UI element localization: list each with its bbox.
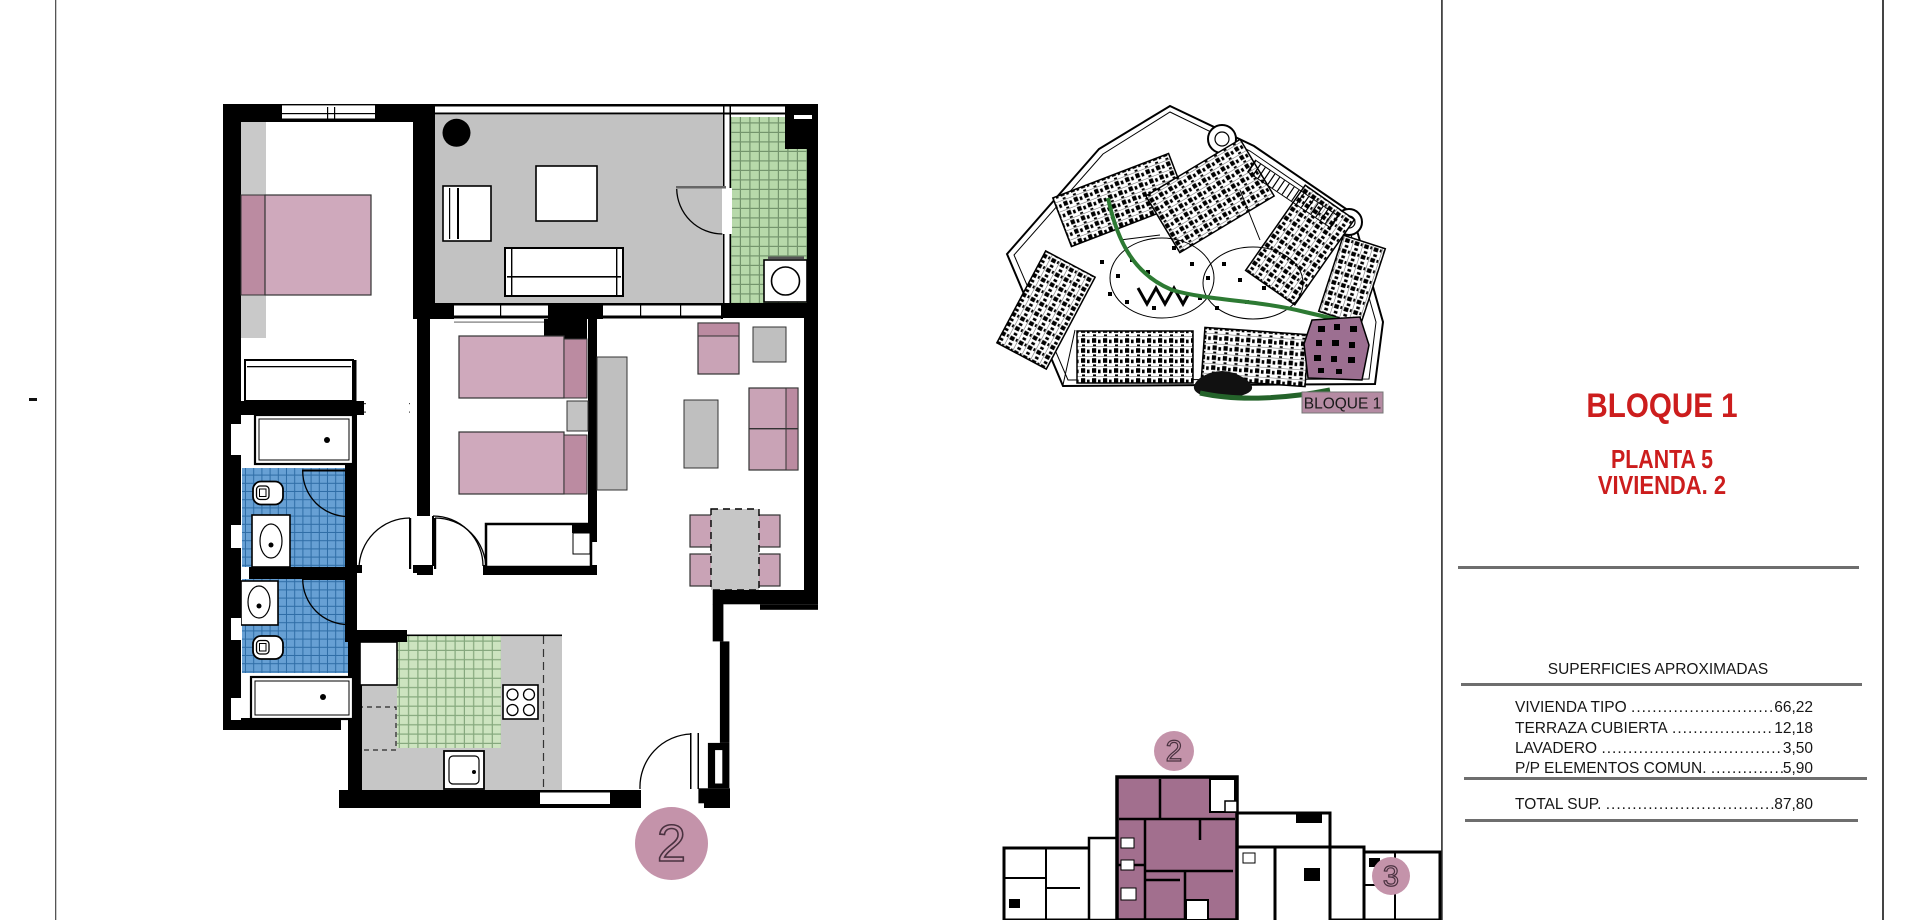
svg-text:3: 3 (1383, 861, 1399, 893)
svg-text:2: 2 (1166, 735, 1183, 768)
svg-text:2: 2 (657, 815, 686, 873)
svg-text:BLOQUE 1: BLOQUE 1 (1304, 396, 1382, 413)
